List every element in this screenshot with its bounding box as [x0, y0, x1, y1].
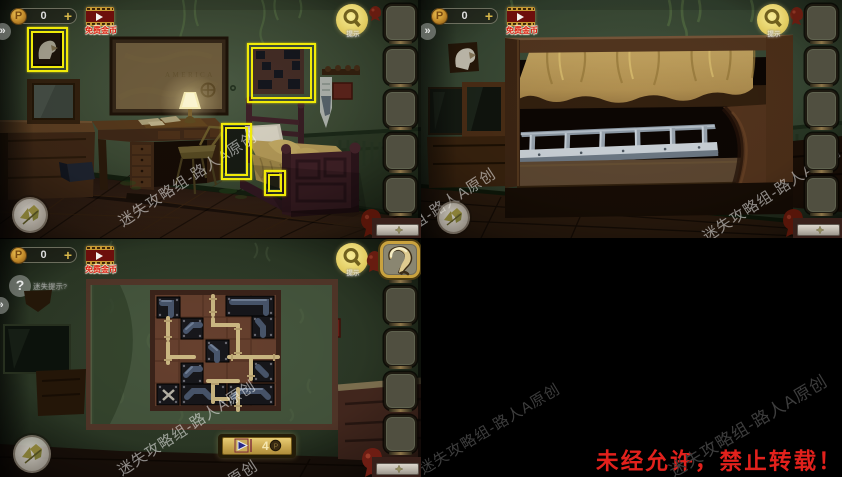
svg-text:4: 4	[262, 439, 269, 453]
svg-text:P: P	[274, 444, 279, 451]
